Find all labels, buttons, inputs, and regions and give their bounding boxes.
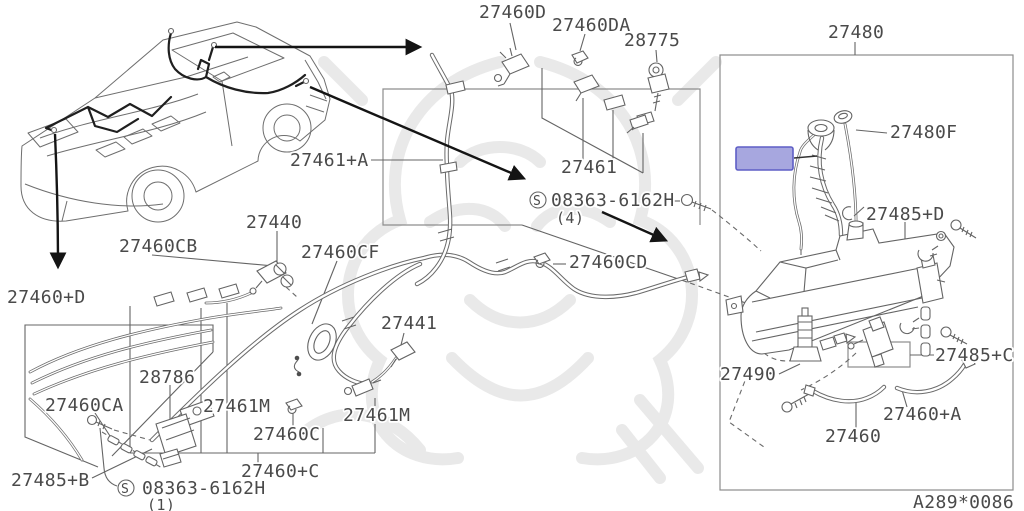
- part-label-27461a[interactable]: 27461+A: [290, 150, 369, 171]
- headlight: [28, 119, 78, 147]
- part-label-28786[interactable]: 28786: [139, 367, 195, 388]
- part-label-28775[interactable]: 28775: [624, 30, 680, 51]
- part-label-27461m-left[interactable]: 27461M: [203, 396, 270, 417]
- part-label-27460cf[interactable]: 27460CF: [301, 242, 380, 263]
- part-label-27480f[interactable]: 27480F: [890, 122, 957, 143]
- washer-tubing-on-car: [46, 29, 309, 133]
- part-label-27460d[interactable]: 27460D: [479, 2, 546, 23]
- screw-symbol-top: S: [533, 194, 541, 209]
- part-label-27440[interactable]: 27440: [246, 212, 302, 233]
- part-label-27485c[interactable]: 27485+C: [935, 345, 1014, 366]
- hose-joints-28786: [154, 284, 239, 306]
- rear-wheel: [263, 104, 311, 152]
- screw-symbol-bottom: S: [121, 482, 129, 497]
- part-label-27460cb[interactable]: 27460CB: [119, 236, 198, 257]
- qty-label-top: (4): [556, 209, 584, 227]
- part-label-27460cd[interactable]: 27460CD: [569, 252, 648, 273]
- washer-nozzle-27460d: [502, 54, 529, 74]
- part-label-27460c[interactable]: 27460C: [253, 424, 320, 445]
- part-label-27441[interactable]: 27441: [381, 313, 437, 334]
- part-label-27480[interactable]: 27480: [828, 22, 884, 43]
- sheet-reference: A289*0086: [913, 492, 1014, 511]
- part-label-27490[interactable]: 27490: [720, 364, 776, 385]
- highlight-box[interactable]: [736, 147, 793, 170]
- vehicle-illustration: [21, 22, 330, 222]
- part-label-27485b[interactable]: 27485+B: [11, 470, 90, 491]
- parts-diagram-canvas: 27460D 27460DA 28775 27480 27461+A 27461…: [0, 0, 1024, 511]
- part-label-27461m-right[interactable]: 27461M: [343, 405, 410, 426]
- qty-label-bottom: (1): [147, 496, 175, 511]
- screw-08363: [682, 195, 693, 206]
- part-label-27485d[interactable]: 27485+D: [866, 204, 945, 225]
- part-label-27460da[interactable]: 27460DA: [552, 15, 631, 36]
- washer-nozzle-27441: [391, 342, 415, 360]
- arrow-down-front: [55, 134, 58, 266]
- front-wheel: [132, 170, 184, 222]
- part-label-08363-top[interactable]: 08363-6162H: [551, 190, 675, 211]
- part-label-27460pa[interactable]: 27460+A: [883, 404, 962, 425]
- part-label-27460[interactable]: 27460: [825, 426, 881, 447]
- part-label-27460pd[interactable]: 27460+D: [7, 287, 86, 308]
- dashed-links: [102, 210, 856, 468]
- part-label-27460ca[interactable]: 27460CA: [45, 395, 124, 416]
- part-label-27461[interactable]: 27461: [561, 157, 617, 178]
